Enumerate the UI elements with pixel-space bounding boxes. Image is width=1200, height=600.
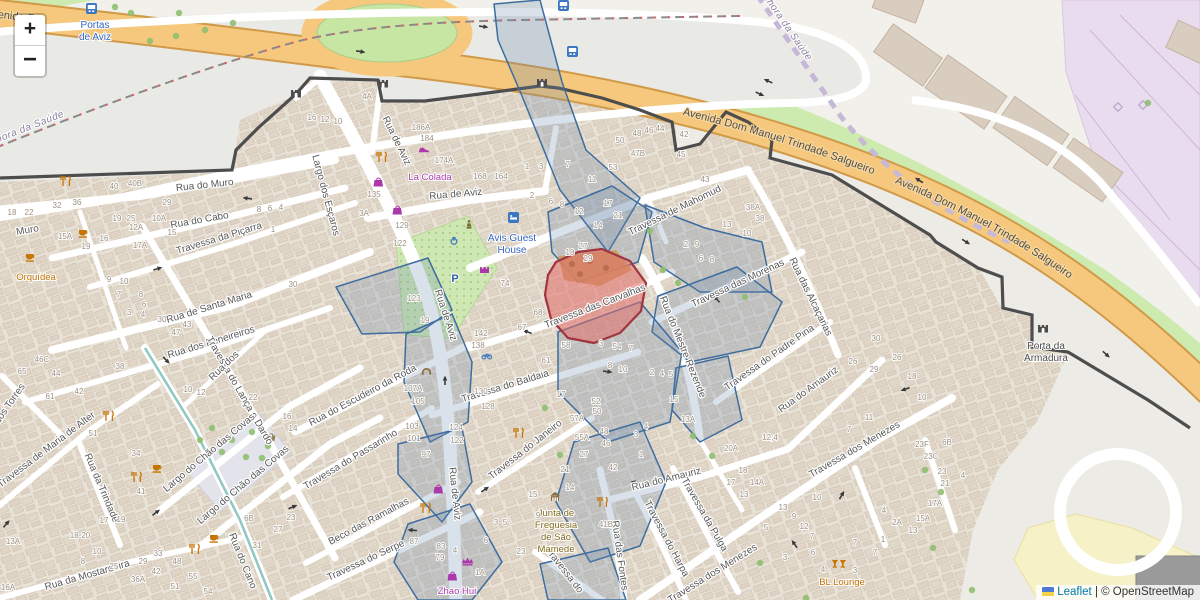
house-number: 4 [882,506,887,515]
house-number: 15 [529,490,538,499]
house-number: 6B [942,438,952,447]
house-number: 10 [334,117,343,126]
house-number: 87 [410,537,419,546]
house-number: 54 [613,342,622,351]
house-number: 128 [481,402,495,411]
house-number: 36 [73,198,82,207]
house-number: 105 [411,397,425,406]
house-number: 15 [168,228,177,237]
bar-label: BL Lounge [819,577,865,588]
house-number: 18-20 [70,531,91,540]
house-number: 135 [367,190,381,199]
house-number: 18 [739,466,748,475]
house-number: 6 [699,254,704,263]
house-number: 10 [743,229,752,238]
bus-stop-icon [86,3,97,14]
house-number: 10 [813,493,822,502]
house-number: 130 [474,387,488,396]
house-number: 68 [534,308,543,317]
house-number: 8 [139,290,144,299]
house-number: 4 [644,422,649,431]
house-number: 46C [35,355,50,364]
house-number: 16 [100,234,109,243]
house-number: 30 [289,280,298,289]
house-number: 6 [142,300,147,309]
house-number: 6 [268,204,273,213]
house-number: 8 [710,255,715,264]
house-number: 10 [918,393,927,402]
house-number: 23C [924,452,939,461]
house-number: 7 [873,548,878,557]
house-number: 19 [117,515,126,524]
house-number: 6 [811,548,816,557]
house-number: 43 [701,175,710,184]
house-number: 46 [645,126,654,135]
house-number: 40B [128,179,142,188]
house-number: 13A [6,537,21,546]
house-number: 122 [393,239,407,248]
house-number: 10 [120,277,129,286]
house-number: 12 [575,207,584,216]
house-number: 17 [727,478,736,487]
bus-station-label: de Aviz [79,32,111,43]
house-number: 48 [600,427,609,436]
house-number: 38 [116,362,125,371]
house-number: 7 [629,344,634,353]
house-number: 8 [608,361,613,370]
house-number: 65 [18,367,27,376]
house-number: 3 [494,518,499,527]
city-gate-icon [378,80,388,88]
house-number: 48 [173,557,182,566]
house-number: 13 [740,490,749,499]
house-number: 10A [152,214,167,223]
house-number: 41B [599,520,613,529]
house-number: 10 [93,547,102,556]
house-number: 42 [152,567,161,576]
house-number: 17A [928,499,943,508]
city-gate-icon [537,79,547,87]
house-number: 46 [602,439,611,448]
house-number: 61 [542,356,551,365]
house-number: 122 [450,436,464,445]
house-number: 4A [362,92,372,101]
house-number: 6B [244,514,254,523]
house-number: 47 [172,328,181,337]
house-number: 42 [75,387,84,396]
hotel-icon [508,212,519,223]
house-number: 1A [475,568,485,577]
house-number: 42 [609,463,618,472]
house-number: 7 [853,538,858,547]
house-number: 9 [695,240,700,249]
house-number: 8 [560,200,565,209]
house-number: 50 [593,407,602,416]
house-number: 16 [308,113,317,122]
house-number: 45 [677,150,686,159]
house-number: 7 [117,290,122,299]
house-number: 184 [420,134,434,143]
house-number: 14A [750,478,765,487]
house-number: 19 [82,242,91,251]
house-number: 13 [723,220,732,229]
house-number: 53 [609,163,618,172]
house-number: 27 [579,242,588,251]
house-number: 16A [1,583,16,592]
house-number: 44 [656,124,665,133]
shop-label: Zhao Hui [438,586,477,597]
house-number: 44 [52,369,61,378]
house-number: 12 [321,115,330,124]
house-number: 6 [484,536,489,545]
house-number: 32 [53,201,62,210]
house-number: 3 [599,339,604,348]
house-number: 23F [915,440,929,449]
house-number: 27 [274,525,283,534]
house-number: 3 [634,430,639,439]
house-number: 27 [580,450,589,459]
house-number: 9 [792,512,797,521]
house-number: 12;4 [762,433,778,442]
map-viewport[interactable]: Rua de Aviz Rua de Aviz Rua de Aviz Rua … [0,0,1200,600]
shop-label: La Colada [408,172,452,183]
house-number: 10 [184,385,193,394]
house-number: 34 [132,449,141,458]
house-number: 22 [25,208,34,217]
house-number: 36A [131,575,146,584]
house-number: 2 [684,240,689,249]
house-number: 4 [961,471,966,480]
zoom-in-button[interactable]: + [15,15,45,46]
house-number: 38A [746,203,761,212]
house-number: 5 [503,518,508,527]
house-number: 40 [110,182,119,191]
house-number: 51 [89,429,98,438]
house-number: 18 [908,372,917,381]
bus-stop-icon [558,0,569,11]
house-number: 4 [660,369,665,378]
house-number: 29 [139,557,148,566]
house-number: 21 [941,479,950,488]
house-number: 61 [46,392,55,401]
gate-label: Porta da [1027,341,1065,352]
house-number: 23 [287,513,296,522]
house-number: 14 [566,483,575,492]
house-number: 13 [909,526,918,535]
house-number: 10 [619,365,628,374]
house-number: 31 [253,541,262,550]
house-number: 18 [8,208,17,217]
house-number: 9 [536,511,541,520]
townhall-label: Junta de [538,508,574,519]
house-number: 33 [154,549,163,558]
zoom-out-button[interactable]: − [15,46,45,76]
house-number: 7 [810,532,815,541]
house-number: 3A [359,209,369,218]
house-number: 23 [517,547,526,556]
house-number: 51 [171,582,180,591]
house-number: 74 [501,279,510,288]
house-number: 42 [680,130,689,139]
house-number: 12 [800,522,809,531]
house-number: 23 [938,467,947,476]
house-number: 21 [614,211,623,220]
house-number: 25 [127,214,136,223]
house-number: 48 [633,129,642,138]
map-tiles: Rua de Aviz Rua de Aviz Rua de Aviz Rua … [0,0,1200,600]
house-number: 5 [669,370,674,379]
house-number: 103 [405,422,419,431]
house-number: 4 [141,310,146,319]
parking-icon: P [451,273,458,285]
attribution-separator: | [1095,586,1098,598]
attribution-bar: Leaflet | © OpenStreetMap [1036,585,1200,600]
house-number: 124 [449,423,463,432]
house-number: 41 [137,487,146,496]
house-number: 55A [575,433,590,442]
hotel-label: House [498,245,527,256]
house-number: 19 [113,214,122,223]
house-number: 13A [681,415,696,424]
house-number: 107A [404,384,423,393]
house-number: 2 [530,191,535,200]
house-number: 9 [107,275,112,284]
house-number: 7 [847,425,852,434]
house-number: 17A [133,241,148,250]
ukraine-flag-icon [1042,587,1054,596]
house-number: 47B [631,149,645,158]
house-number: 14 [289,424,298,433]
house-number: 101 [407,434,421,443]
house-number: 174A [435,156,454,165]
house-number: 15A [916,514,931,523]
house-number: 30 [872,334,881,343]
house-number: 79 [436,553,445,562]
townhall-label: Mamede [538,544,575,555]
house-number: 55 [189,572,198,581]
house-number: 21 [561,465,570,474]
house-number: 17 [557,390,566,399]
house-number: 17 [100,516,109,525]
house-number: 11 [865,413,874,422]
house-number: 1 [639,450,644,459]
house-number: 168 [473,172,487,181]
house-number: 3 [539,162,544,171]
house-number: 12A [129,223,144,232]
house-number: 7 [566,160,571,169]
house-number: 29 [163,198,172,207]
hotel-label: Avis Guest [488,233,536,244]
house-number: 97 [422,450,431,459]
house-number: 123 [407,294,421,303]
house-number: 129 [395,221,409,230]
cafe-label: Orquídea [16,272,56,283]
house-number: 3 [853,566,858,575]
house-number: 50 [616,136,625,145]
leaflet-link[interactable]: Leaflet [1057,586,1092,598]
house-number: 11 [588,175,597,184]
house-number: 8 [81,557,86,566]
bus-stop-icon [567,46,578,57]
house-number: 186A [412,123,431,132]
house-number: 29 [584,254,593,263]
house-number: 16 [283,412,292,421]
city-gate-icon [291,90,301,98]
house-number: 20A [724,444,739,453]
house-number: 1 [271,225,276,234]
house-number: 25 [110,562,119,571]
house-number: 15A [58,232,73,241]
house-number: 83 [437,542,446,551]
house-number: 12 [197,388,206,397]
house-number: 54 [204,587,213,596]
house-number: 3 [783,553,788,562]
house-number: 4 [453,546,458,555]
townhall-label: Freguesia [535,520,578,531]
house-number: 14 [594,221,603,230]
house-number: 38 [756,214,765,223]
house-number: 8 [257,205,262,214]
house-number: 17 [604,199,613,208]
house-number: 5 [764,523,769,532]
house-number: 142 [474,329,488,338]
townhall-label: de São [541,532,571,543]
gate-label: Armadura [1024,353,1068,364]
house-number: 1 [525,162,530,171]
house-number: 15 [670,395,679,404]
house-number: 18 [566,248,575,257]
house-number: 2A [892,518,902,527]
osm-copyright-link[interactable]: © OpenStreetMap [1101,586,1194,598]
house-number: 30 [158,315,167,324]
house-number: 19 [421,316,430,325]
house-number: 58 [562,341,571,350]
house-number: 1 [881,535,886,544]
house-number: 4 [821,565,826,574]
city-gate-icon [1038,325,1048,333]
house-number: 29 [870,365,879,374]
house-number: 164 [494,172,508,181]
house-number: 138 [471,341,485,350]
house-number: 26 [893,353,902,362]
house-number: 67 [518,323,527,332]
house-number: 4 [279,203,284,212]
house-number: 13 [779,503,788,512]
bus-station-label: Portas [81,20,110,31]
house-number: 3 [127,308,132,317]
house-number: 57A [570,414,585,423]
house-number: 6 [549,197,554,206]
monument-icon [480,267,489,273]
house-number: 26 [849,357,858,366]
house-number: 52 [592,397,601,406]
house-number: 2 [650,368,655,377]
zoom-control: + − [13,13,47,78]
house-number: 43 [183,320,192,329]
house-number: 22 [249,393,258,402]
